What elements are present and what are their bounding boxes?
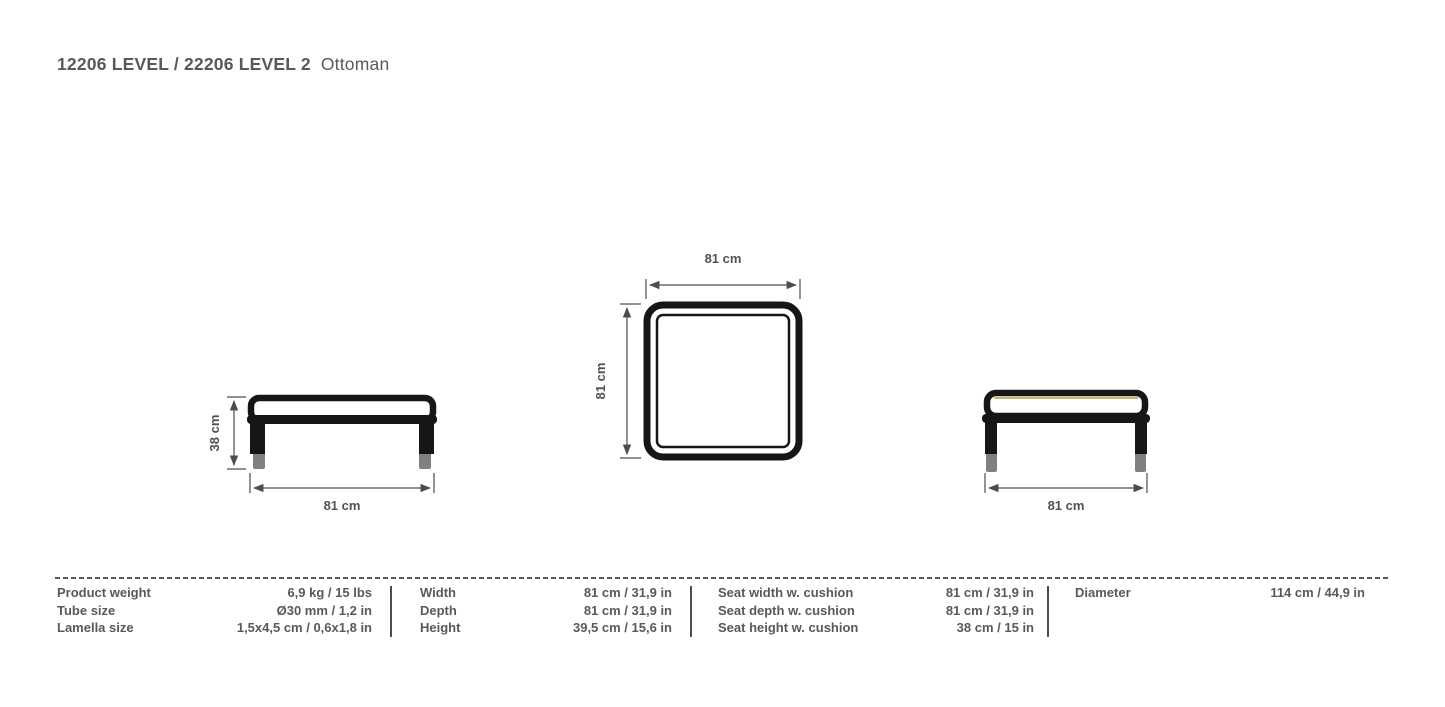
front-seat-outline	[987, 393, 1145, 416]
spec-row: Seat height w. cushion 38 cm / 15 in	[718, 619, 1034, 637]
top-inner-seat	[657, 315, 789, 447]
spec-label: Diameter	[1075, 584, 1131, 602]
spec-value: 81 cm / 31,9 in	[946, 584, 1034, 602]
table-divider	[1047, 586, 1049, 637]
side-right-leg	[419, 420, 434, 454]
spec-row: Seat width w. cushion 81 cm / 31,9 in	[718, 584, 1034, 602]
table-divider	[690, 586, 692, 637]
spec-row: Tube size Ø30 mm / 1,2 in	[57, 602, 372, 620]
top-view-depth-label: 81 cm	[592, 353, 610, 409]
spec-group-general: Product weight 6,9 kg / 15 lbs Tube size…	[57, 584, 372, 637]
side-height-dimension	[227, 397, 246, 469]
front-right-leg	[1135, 420, 1147, 454]
top-view-drawing	[647, 305, 799, 457]
spec-label: Product weight	[57, 584, 151, 602]
spec-group-diameter: Diameter 114 cm / 44,9 in	[1075, 584, 1365, 602]
side-view-drawing	[247, 398, 437, 469]
spec-label: Tube size	[57, 602, 115, 620]
spec-label: Seat height w. cushion	[718, 619, 858, 637]
spec-label: Depth	[420, 602, 457, 620]
front-view-width-label: 81 cm	[1030, 497, 1102, 515]
side-view-height-label: 38 cm	[206, 405, 224, 461]
spec-row: Depth 81 cm / 31,9 in	[420, 602, 672, 620]
spec-label: Lamella size	[57, 619, 134, 637]
spec-value: 6,9 kg / 15 lbs	[287, 584, 372, 602]
spec-value: 114 cm / 44,9 in	[1270, 584, 1365, 602]
top-depth-dimension	[620, 304, 641, 458]
spec-label: Width	[420, 584, 456, 602]
side-width-dimension	[250, 473, 434, 493]
spec-value: Ø30 mm / 1,2 in	[277, 602, 372, 620]
spec-table-top-rule	[55, 577, 1390, 579]
top-width-dimension	[646, 279, 800, 299]
spec-value: 81 cm / 31,9 in	[946, 602, 1034, 620]
side-left-leg	[250, 420, 265, 454]
top-outer-frame	[647, 305, 799, 457]
spec-value: 81 cm / 31,9 in	[584, 584, 672, 602]
spec-label: Seat depth w. cushion	[718, 602, 855, 620]
spec-row: Seat depth w. cushion 81 cm / 31,9 in	[718, 602, 1034, 620]
top-view-width-label: 81 cm	[687, 250, 759, 268]
table-divider	[390, 586, 392, 637]
spec-row: Height 39,5 cm / 15,6 in	[420, 619, 672, 637]
spec-row: Diameter 114 cm / 44,9 in	[1075, 584, 1365, 602]
front-left-leg	[985, 420, 997, 454]
front-view-drawing	[982, 393, 1150, 472]
spec-value: 38 cm / 15 in	[957, 619, 1034, 637]
spec-value: 39,5 cm / 15,6 in	[573, 619, 672, 637]
spec-row: Width 81 cm / 31,9 in	[420, 584, 672, 602]
spec-row: Product weight 6,9 kg / 15 lbs	[57, 584, 372, 602]
spec-group-overall-dimensions: Width 81 cm / 31,9 in Depth 81 cm / 31,9…	[420, 584, 672, 637]
spec-label: Height	[420, 619, 460, 637]
spec-value: 81 cm / 31,9 in	[584, 602, 672, 620]
side-view-width-label: 81 cm	[306, 497, 378, 515]
spec-label: Seat width w. cushion	[718, 584, 853, 602]
spec-row: Lamella size 1,5x4,5 cm / 0,6x1,8 in	[57, 619, 372, 637]
front-width-dimension	[985, 473, 1147, 493]
spec-group-seat-dimensions: Seat width w. cushion 81 cm / 31,9 in Se…	[718, 584, 1034, 637]
spec-value: 1,5x4,5 cm / 0,6x1,8 in	[237, 619, 372, 637]
